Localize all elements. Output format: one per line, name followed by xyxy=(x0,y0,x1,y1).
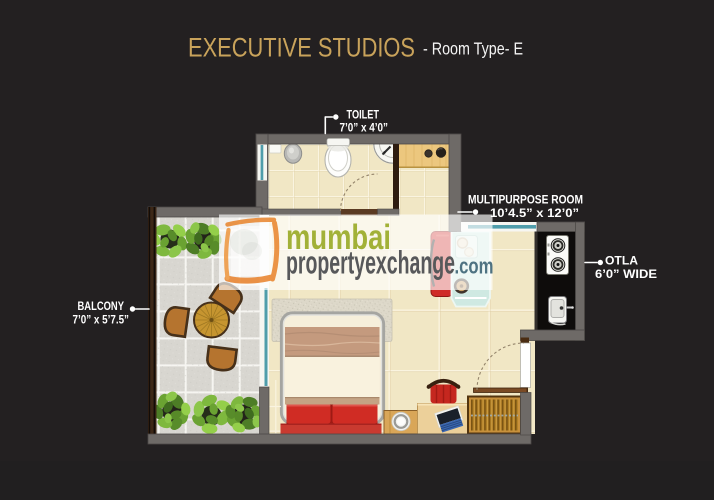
svg-text:OTLA: OTLA xyxy=(605,256,638,268)
svg-text:- Room Type- E: - Room Type- E xyxy=(423,39,523,59)
svg-text:7’0” x 4’0”: 7’0” x 4’0” xyxy=(340,123,389,135)
svg-text:6’0” WIDE: 6’0” WIDE xyxy=(595,269,657,281)
svg-text:BALCONY: BALCONY xyxy=(78,301,125,313)
svg-text:7’0” x 5’7.5”: 7’0” x 5’7.5” xyxy=(73,315,130,327)
svg-text:MULTIPURPOSE ROOM: MULTIPURPOSE ROOM xyxy=(468,195,583,207)
svg-text:.com: .com xyxy=(455,254,494,279)
svg-text:EXECUTIVE STUDIOS: EXECUTIVE STUDIOS xyxy=(188,33,415,63)
svg-text:TOILET: TOILET xyxy=(347,110,380,122)
svg-text:propertyexchange: propertyexchange xyxy=(286,245,455,281)
svg-text:10’4.5” x 12’0”: 10’4.5” x 12’0” xyxy=(490,208,579,220)
